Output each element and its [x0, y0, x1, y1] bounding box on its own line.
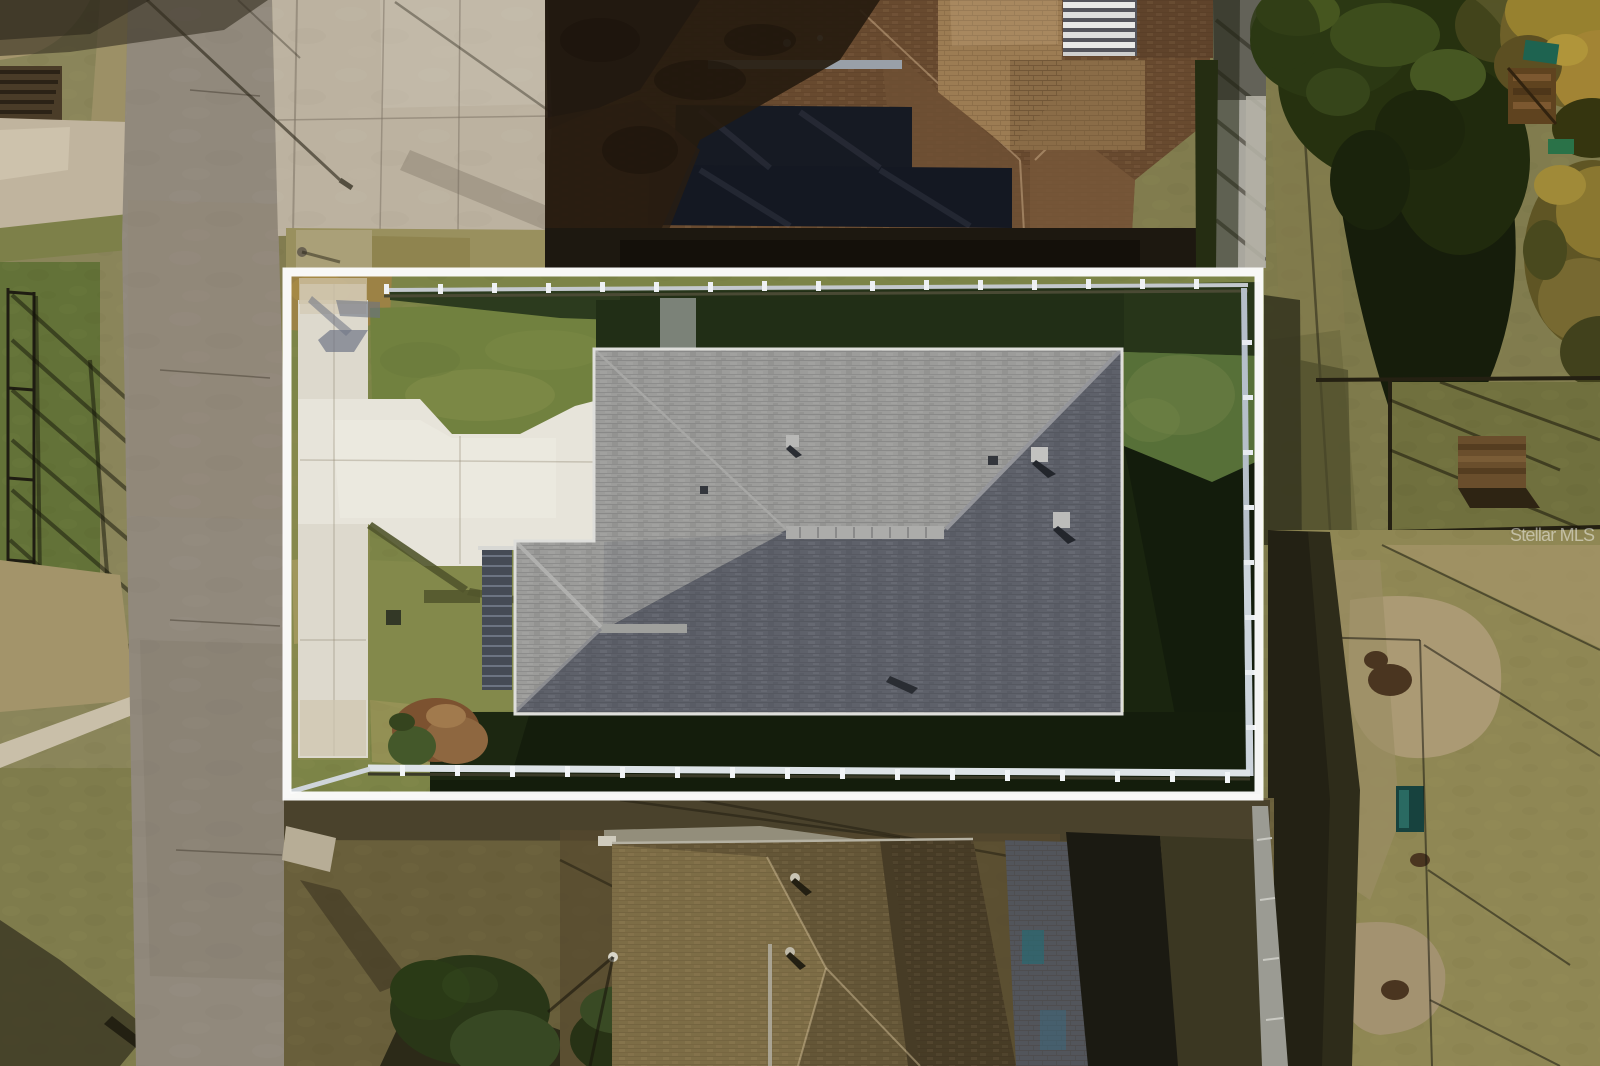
- svg-text:Stellar MLS: Stellar MLS: [1510, 525, 1595, 545]
